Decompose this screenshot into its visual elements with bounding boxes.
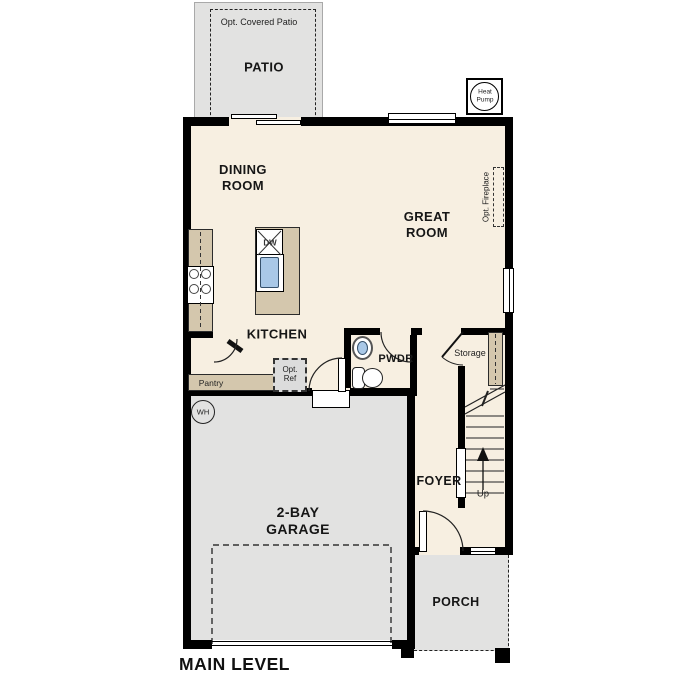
optional-fireplace-dashed-box bbox=[493, 167, 504, 227]
patio-label: PATIO bbox=[244, 60, 284, 75]
front-door-panel bbox=[419, 511, 427, 552]
sliding-door-panel-outer bbox=[231, 114, 277, 119]
garage-line2: GARAGE bbox=[266, 521, 330, 538]
stove-burner-icon bbox=[201, 269, 211, 279]
island-sink bbox=[260, 257, 279, 288]
heat-pump-line2: Pump bbox=[477, 96, 494, 104]
water-heater-label: WH bbox=[197, 408, 210, 417]
dishwasher-label: DW bbox=[263, 239, 276, 248]
porch-label: PORCH bbox=[432, 595, 479, 609]
wall-right bbox=[505, 117, 513, 555]
stove-burner-icon bbox=[189, 284, 199, 294]
pwdr-sink-basin bbox=[357, 341, 368, 355]
toilet-bowl-icon bbox=[362, 368, 383, 388]
window-great-room-right bbox=[503, 268, 514, 313]
main-level-title: MAIN LEVEL bbox=[179, 654, 290, 675]
window-great-room-top bbox=[388, 113, 456, 124]
wall-garage-right bbox=[407, 388, 415, 649]
great-room-label: GREAT ROOM bbox=[404, 209, 451, 241]
kitchen-label: KITCHEN bbox=[247, 327, 308, 342]
patio-note-label: Opt. Covered Patio bbox=[221, 17, 298, 27]
opt-ref-line1: Opt. bbox=[282, 365, 297, 374]
pwdr-label: PWDR bbox=[378, 353, 413, 365]
foyer-label: FOYER bbox=[416, 474, 461, 488]
garage-line1: 2-BAY bbox=[266, 504, 330, 521]
stove-burner-icon bbox=[201, 284, 211, 294]
dining-line1: DINING bbox=[219, 162, 267, 178]
great-line1: GREAT bbox=[404, 209, 451, 225]
optional-refrigerator-label: Opt. Ref bbox=[282, 365, 297, 383]
stove-burner-icon bbox=[189, 269, 199, 279]
garage-label: 2-BAY GARAGE bbox=[266, 504, 330, 538]
wall-storage-top bbox=[461, 328, 513, 335]
garage-service-door-panel bbox=[338, 358, 346, 392]
heat-pump-label: Heat Pump bbox=[477, 89, 494, 104]
great-line2: ROOM bbox=[404, 225, 451, 241]
sliding-door-panel-inner bbox=[256, 120, 301, 125]
pantry-label: Pantry bbox=[199, 378, 224, 388]
storage-shelf bbox=[488, 332, 503, 386]
optional-fireplace-label: Opt. Fireplace bbox=[482, 172, 491, 222]
window-foyer-front bbox=[470, 547, 496, 555]
opt-ref-line2: Ref bbox=[282, 374, 297, 383]
stair-handrail bbox=[456, 448, 466, 498]
porch-post-left bbox=[401, 644, 414, 658]
stairs-up-label: Up bbox=[477, 489, 489, 500]
dining-room-label: DINING ROOM bbox=[219, 162, 267, 194]
dining-line2: ROOM bbox=[219, 178, 267, 194]
storage-label: Storage bbox=[454, 348, 486, 358]
floor-plan: Opt. Covered Patio PATIO Heat Pump DININ… bbox=[0, 0, 687, 687]
overhead-garage-door-opening bbox=[212, 640, 392, 649]
garage-landing-step bbox=[312, 390, 350, 408]
heat-pump-line1: Heat bbox=[477, 89, 494, 97]
porch-post-right bbox=[495, 648, 510, 663]
pwdr-door-opening bbox=[380, 328, 411, 335]
